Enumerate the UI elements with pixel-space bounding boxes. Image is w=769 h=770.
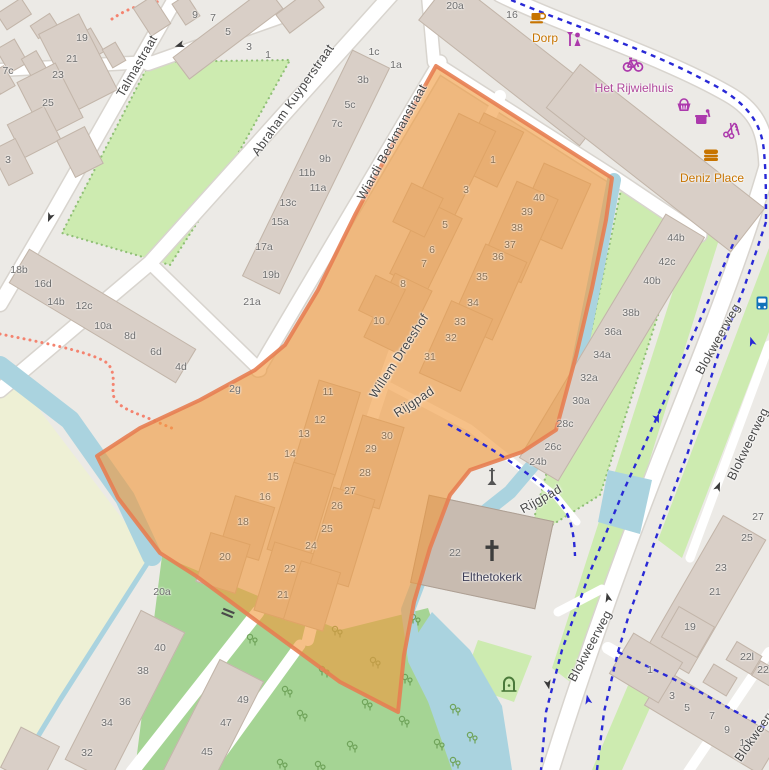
oneway-arrow-icon xyxy=(652,413,662,424)
monument-icon xyxy=(488,468,497,485)
culvert-icon xyxy=(222,609,235,618)
cycle-route-dashed xyxy=(618,652,769,730)
oneway-arrow-icon xyxy=(583,694,592,705)
map-overlay-layer xyxy=(0,0,769,770)
oneway-arrow-icon xyxy=(713,481,723,492)
hairdresser-icon xyxy=(724,123,739,138)
oneway-arrow-icon xyxy=(747,336,757,347)
oneway-arrow-icon xyxy=(45,212,55,223)
supermarket-icon xyxy=(678,99,691,111)
fast-food-icon xyxy=(704,150,718,162)
openstreetmap-viewport[interactable]: 192123257c39753120a161c1a3b5c7c9b11b11a1… xyxy=(0,0,769,770)
bus-stop-icon xyxy=(757,297,768,310)
cafe-icon xyxy=(530,13,545,23)
kitchenware-shop-icon xyxy=(695,109,710,124)
oneway-arrow-icon xyxy=(603,592,612,603)
highlighted-boundary-polygon[interactable] xyxy=(97,66,612,712)
gate-icon xyxy=(502,678,517,692)
cycle-route-dashed xyxy=(597,222,766,770)
oneway-arrow-icon xyxy=(174,40,185,50)
clothes-shop-icon xyxy=(567,32,581,46)
bicycle-shop-icon xyxy=(624,59,643,72)
church-cross-icon xyxy=(486,540,499,561)
